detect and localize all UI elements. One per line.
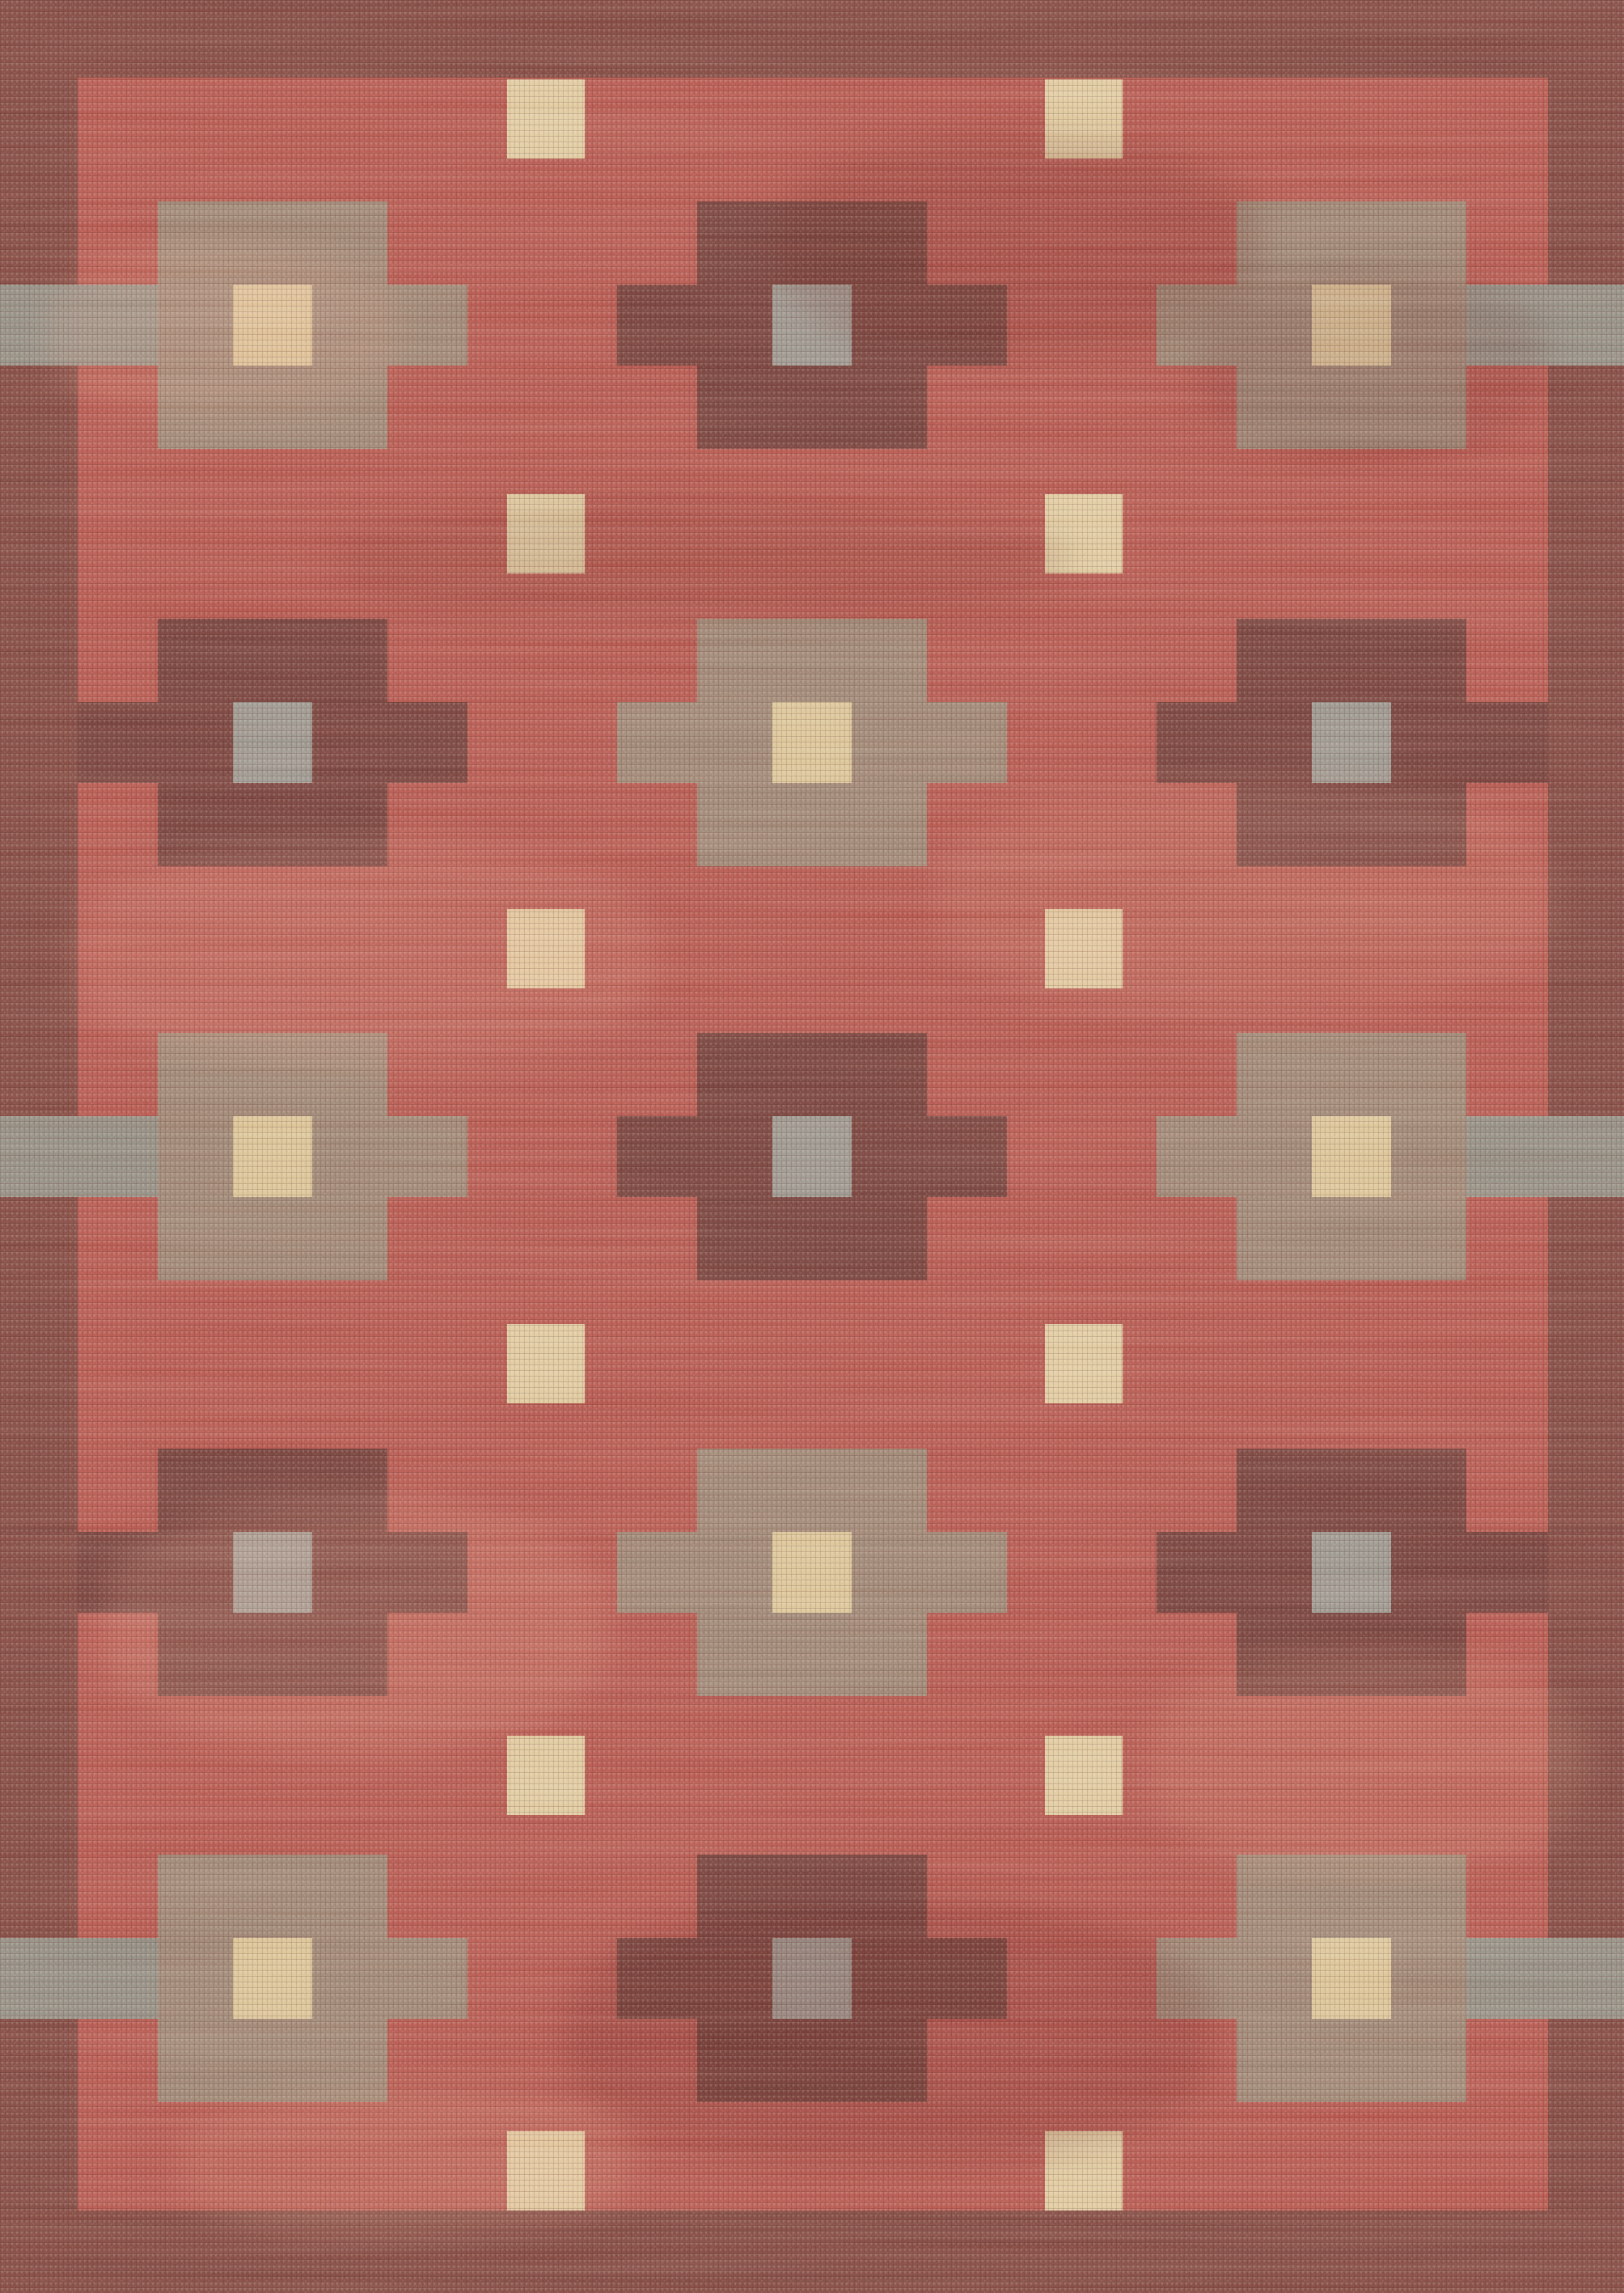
weave-shade-patch [938,776,1553,1019]
weave-shade-patch [178,2087,631,2240]
weave-shade-patch [105,1496,607,1755]
weave-shade-patch [1197,267,1545,461]
weave-shade-patches [0,0,1624,2293]
weave-shade-patch [1148,1650,1585,1876]
weave-shade-patch [776,137,1262,356]
weave-shade-patch [73,841,655,1068]
kilim-rug-photo [0,0,1624,2293]
weave-shade-patch [566,1901,1213,2168]
weave-shade-patch [340,501,1068,623]
weave-shade-patch [49,243,396,421]
